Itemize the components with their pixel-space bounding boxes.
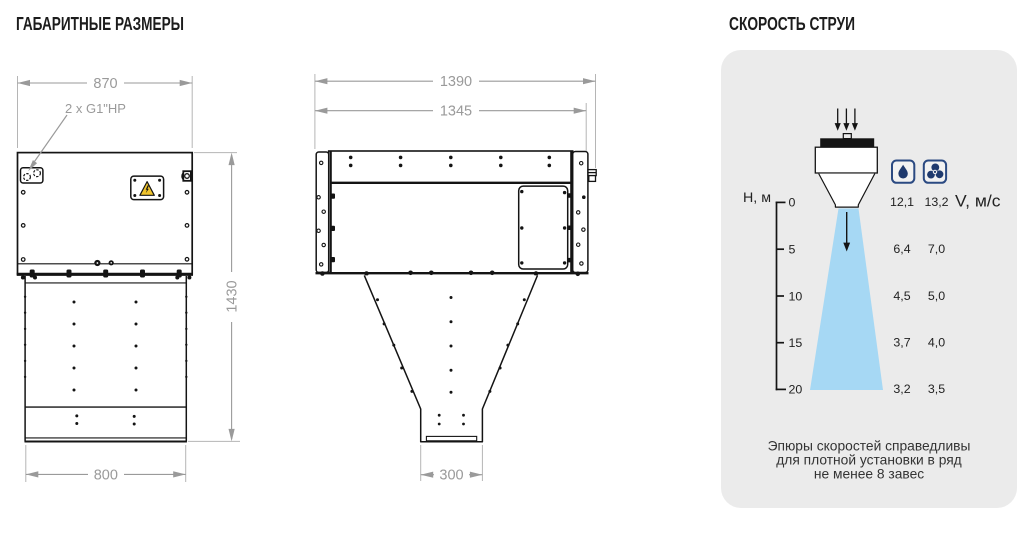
svg-text:6,4: 6,4	[893, 242, 910, 256]
svg-text:15: 15	[789, 336, 803, 350]
svg-text:10: 10	[789, 289, 803, 303]
svg-text:1390: 1390	[440, 74, 472, 90]
svg-text:20: 20	[789, 383, 803, 397]
svg-text:12,1: 12,1	[890, 195, 914, 209]
svg-text:5,0: 5,0	[928, 289, 945, 303]
svg-text:не менее 8 завес: не менее 8 завес	[814, 467, 924, 482]
svg-text:V, м/с: V, м/с	[955, 192, 1001, 211]
svg-text:СКОРОСТЬ СТРУИ: СКОРОСТЬ СТРУИ	[729, 14, 855, 34]
svg-text:Н, м: Н, м	[743, 190, 771, 205]
svg-text:0: 0	[789, 196, 796, 210]
svg-text:1345: 1345	[440, 104, 472, 120]
svg-text:Эпюры скоростей справедливы: Эпюры скоростей справедливы	[768, 439, 971, 454]
svg-text:3,7: 3,7	[893, 336, 910, 350]
svg-text:870: 870	[93, 76, 117, 92]
svg-text:3,5: 3,5	[928, 382, 945, 396]
svg-text:3,2: 3,2	[893, 382, 910, 396]
svg-text:для плотной установки в ряд: для плотной установки в ряд	[776, 453, 961, 468]
svg-text:7,0: 7,0	[928, 242, 945, 256]
svg-text:5: 5	[789, 243, 796, 257]
svg-text:4,0: 4,0	[928, 336, 945, 350]
svg-text:13,2: 13,2	[924, 195, 948, 209]
svg-text:ГАБАРИТНЫЕ РАЗМЕРЫ: ГАБАРИТНЫЕ РАЗМЕРЫ	[16, 14, 184, 34]
svg-text:1430: 1430	[225, 280, 241, 312]
svg-text:300: 300	[439, 468, 463, 484]
svg-text:800: 800	[94, 467, 118, 483]
svg-text:2 x G1"HP: 2 x G1"HP	[65, 101, 126, 116]
svg-text:4,5: 4,5	[893, 289, 910, 303]
